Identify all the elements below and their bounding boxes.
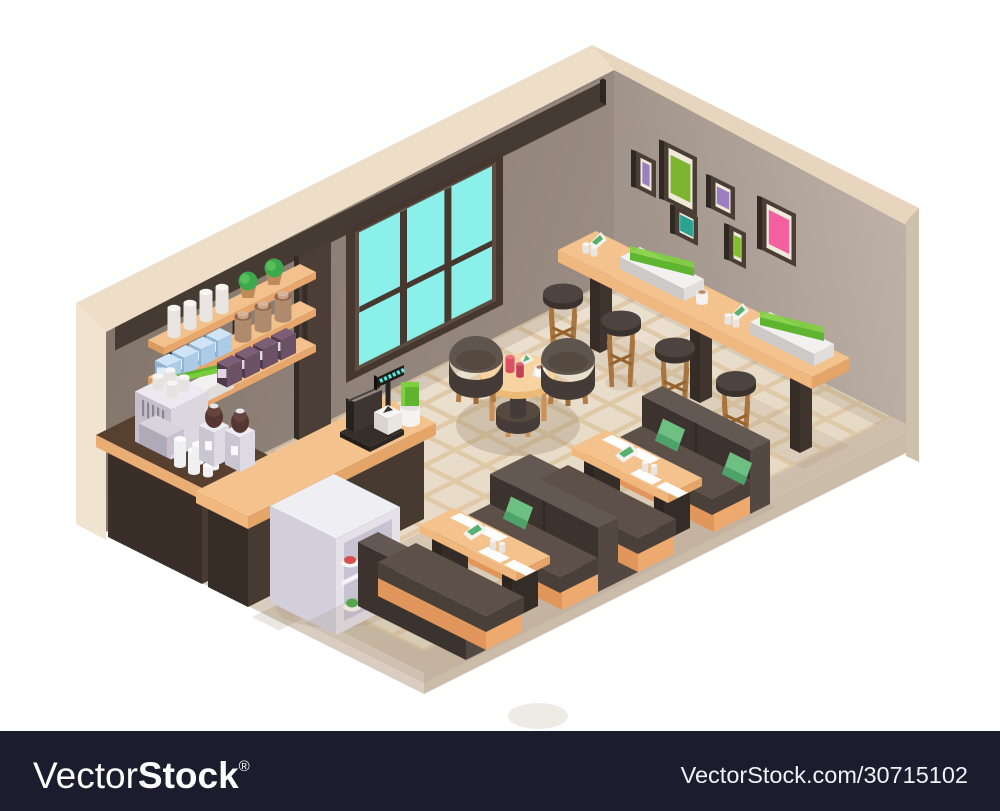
svg-text:VectorStock.com/30715102: VectorStock.com/30715102 (681, 762, 968, 788)
svg-text:VectorStock®: VectorStock® (33, 755, 250, 796)
